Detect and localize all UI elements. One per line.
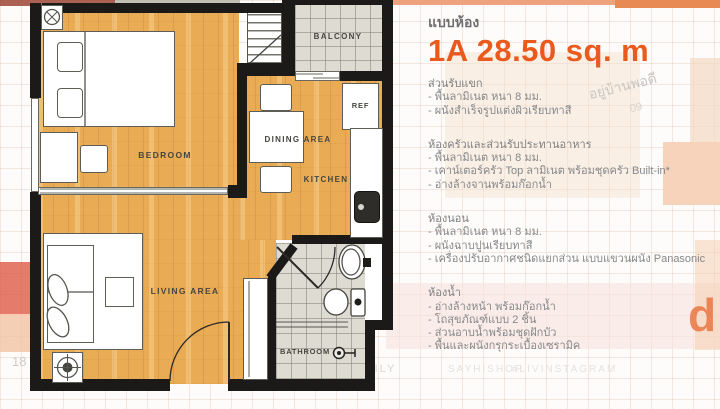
watermark-hashtag: #LIVINSTAGRAM	[512, 364, 617, 375]
spec-item: - พื้นลามิเนต หนา 8 มม.	[428, 152, 720, 165]
spec-item: - ผนังสำเร็จรูปแต่งผิวเรียบทาสี	[428, 105, 720, 118]
spec-section-title: ห้องน้ำ	[428, 287, 720, 300]
spec-section-kitchen: ห้องครัวและส่วนรับประทานอาหาร - พื้นลามิ…	[428, 139, 720, 192]
watermark-left-partial: 18	[12, 354, 26, 369]
label-bedroom: BEDROOM	[125, 150, 205, 160]
top-right-orange-band	[615, 0, 720, 8]
plan-linework	[30, 0, 393, 397]
label-balcony: BALCONY	[303, 32, 373, 41]
unit-info-panel: แบบห้อง 1A 28.50 sq. m ส่วนรับแขก - พื้น…	[428, 12, 720, 354]
left-edge-peach-photo	[0, 314, 30, 352]
spec-section-bathroom: ห้องน้ำ - อ่างล้างหน้า พร้อมก๊อกน้ำ - โถ…	[428, 287, 720, 353]
left-edge-red-photo	[0, 262, 30, 314]
spec-item: - พื้นลามิเนต หนา 8 มม.	[428, 91, 720, 104]
label-living-area: LIVING AREA	[145, 286, 225, 296]
brochure-page: { "header": { "label": "แบบห้อง", "title…	[0, 0, 720, 409]
spec-item: - เคาน์เตอร์ครัว Top ลามิเนต พร้อมชุดครั…	[428, 165, 720, 178]
label-bathroom: BATHROOM	[274, 347, 336, 356]
spec-item: - โถสุขภัณฑ์แบบ 2 ชิ้น	[428, 314, 720, 327]
label-ref: REF	[342, 101, 379, 110]
spec-section-title: ห้องครัวและส่วนรับประทานอาหาร	[428, 139, 720, 152]
spec-section-bedroom: ห้องนอน - พื้นลามิเนต หนา 8 มม. - ผนังฉา…	[428, 213, 720, 266]
label-dining-area: DINING AREA	[248, 135, 348, 144]
spec-section-title: ส่วนรับแขก	[428, 78, 720, 91]
spec-item: - อ่างล้างหน้า พร้อมก๊อกน้ำ	[428, 301, 720, 314]
floor-plan: BEDROOM DINING AREA KITCHEN LIVING AREA …	[30, 0, 393, 397]
label-kitchen: KITCHEN	[296, 175, 356, 184]
spec-item: - ส่วนอาบน้ำพร้อมชุดฝักบัว	[428, 327, 720, 340]
spec-section-living: ส่วนรับแขก - พื้นลามิเนต หนา 8 มม. - ผนั…	[428, 78, 720, 118]
unit-title: 1A 28.50 sq. m	[428, 34, 720, 68]
spec-item: - อ่างล้างจานพร้อมก๊อกน้ำ	[428, 179, 720, 192]
spec-item: - พื้นลามิเนต หนา 8 มม.	[428, 226, 720, 239]
spec-section-title: ห้องนอน	[428, 213, 720, 226]
top-right-salmon-band	[390, 0, 618, 5]
unit-type-label: แบบห้อง	[428, 12, 720, 34]
spec-item: - เครื่องปรับอากาศชนิดแยกส่วน แบบแขวนผนั…	[428, 253, 720, 266]
spec-item: - พื้นและผนังกรุกระเบื้องเซรามิค	[428, 340, 720, 353]
spec-item: - ผนังฉาบปูนเรียบทาสี	[428, 240, 720, 253]
